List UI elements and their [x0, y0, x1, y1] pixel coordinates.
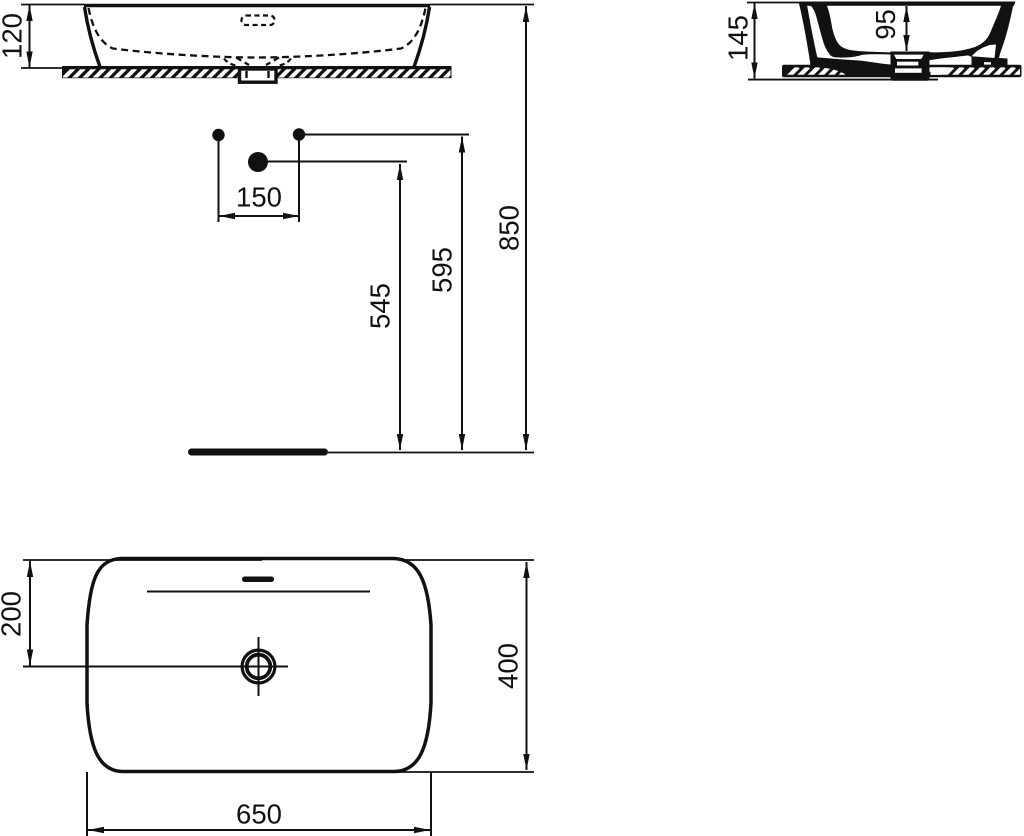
svg-text:650: 650: [236, 799, 282, 830]
svg-text:120: 120: [0, 13, 28, 59]
svg-text:850: 850: [494, 205, 525, 251]
svg-text:95: 95: [870, 9, 901, 40]
svg-text:200: 200: [0, 591, 27, 637]
svg-text:400: 400: [493, 643, 524, 689]
svg-text:545: 545: [365, 283, 396, 329]
svg-text:145: 145: [723, 15, 754, 61]
svg-text:150: 150: [236, 182, 282, 213]
svg-text:595: 595: [427, 247, 458, 293]
